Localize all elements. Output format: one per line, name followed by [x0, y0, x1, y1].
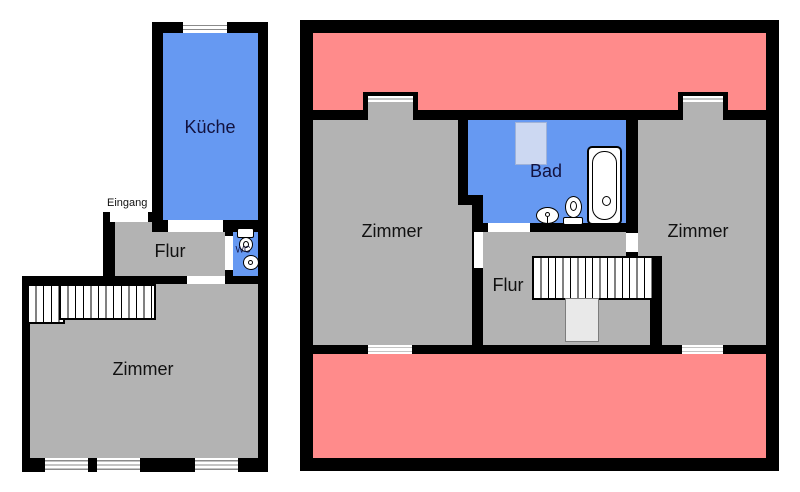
zimmer-left-door-opening [474, 232, 483, 268]
bad-label: Bad [530, 162, 562, 180]
zimmer-left-floor-step [458, 203, 472, 347]
toilet-bowl-icon [565, 196, 582, 218]
sink-icon [536, 207, 559, 224]
flur-label: Flur [493, 276, 524, 294]
dormer-left-neck [368, 102, 413, 120]
toilet-tank-icon [563, 217, 583, 225]
bathtub-inner [592, 151, 617, 220]
dormer-right-wall [723, 92, 728, 120]
outer-bottom-wall [300, 458, 779, 471]
bathtub-icon [587, 146, 622, 225]
zimmer-right-window [682, 345, 723, 354]
bad-door-opening [488, 223, 530, 232]
outer-top-wall [300, 20, 779, 33]
zimmer-left-window [368, 345, 412, 354]
shower-tray-icon [515, 122, 547, 165]
outer-right-wall [766, 20, 779, 471]
roof-slope-bottom [313, 354, 766, 458]
dormer-right-neck [683, 102, 723, 120]
bathtub-drain [602, 196, 611, 206]
floor-plan-upper: Zimmer Bad Flur Zimmer [0, 0, 800, 492]
chimney-icon [565, 298, 599, 342]
zimmer-left-label: Zimmer [362, 222, 423, 240]
zimmer-right-label: Zimmer [668, 222, 729, 240]
dormer-left-wall [413, 92, 418, 120]
sink-tap [547, 217, 549, 223]
zimmer-right-door-opening [626, 233, 638, 252]
zimmer-bad-wall [458, 120, 468, 198]
toilet-bowl-inner [570, 201, 577, 211]
floorplan-canvas: Küche Eingang Flur WC Zimmer [0, 0, 800, 492]
outer-left-wall [300, 20, 313, 471]
zimmer-flur-wall [472, 203, 483, 347]
stairs-icon [532, 256, 654, 300]
